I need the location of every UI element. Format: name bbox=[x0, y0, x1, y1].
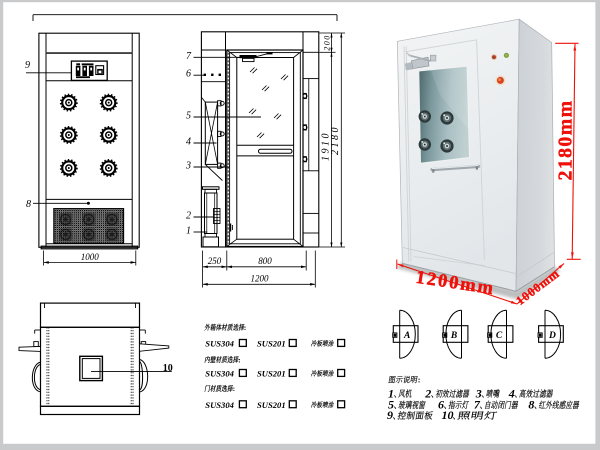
svg-text:2: 2 bbox=[424, 386, 431, 400]
svg-text:2180: 2180 bbox=[330, 125, 341, 155]
svg-text:SUS304: SUS304 bbox=[205, 369, 234, 379]
svg-text:10: 10 bbox=[163, 363, 173, 374]
svg-text:C: C bbox=[496, 331, 503, 341]
svg-text:1200: 1200 bbox=[251, 274, 270, 284]
svg-text::: : bbox=[238, 356, 240, 364]
svg-text:7: 7 bbox=[474, 398, 481, 412]
svg-text:2180mm: 2180mm bbox=[554, 100, 576, 181]
svg-text:SUS201: SUS201 bbox=[257, 400, 286, 410]
svg-text:SUS304: SUS304 bbox=[205, 400, 234, 410]
svg-text:9: 9 bbox=[387, 408, 393, 422]
svg-text:8: 8 bbox=[528, 398, 534, 412]
svg-text:10: 10 bbox=[442, 408, 454, 422]
svg-text:A: A bbox=[403, 331, 410, 341]
svg-text:8: 8 bbox=[26, 199, 31, 210]
svg-text:250: 250 bbox=[208, 256, 222, 266]
svg-text::: : bbox=[418, 376, 421, 385]
svg-text:1000: 1000 bbox=[81, 252, 100, 262]
svg-text:4: 4 bbox=[508, 386, 515, 400]
svg-text:D: D bbox=[548, 331, 556, 341]
svg-text:5: 5 bbox=[186, 111, 191, 122]
svg-text:9: 9 bbox=[25, 60, 30, 71]
svg-text:SUS304: SUS304 bbox=[205, 339, 234, 349]
svg-text::: : bbox=[244, 324, 246, 332]
svg-text:200: 200 bbox=[323, 34, 332, 51]
svg-text:4: 4 bbox=[186, 137, 191, 148]
svg-text:SUS201: SUS201 bbox=[257, 339, 286, 349]
svg-text:2: 2 bbox=[186, 211, 191, 222]
svg-text:3: 3 bbox=[185, 161, 191, 172]
svg-text:6: 6 bbox=[186, 69, 191, 80]
svg-text:1: 1 bbox=[186, 226, 191, 237]
svg-text:800: 800 bbox=[258, 256, 272, 266]
svg-text:SUS201: SUS201 bbox=[257, 369, 286, 379]
svg-text::: : bbox=[233, 385, 235, 393]
svg-text:B: B bbox=[450, 331, 457, 341]
